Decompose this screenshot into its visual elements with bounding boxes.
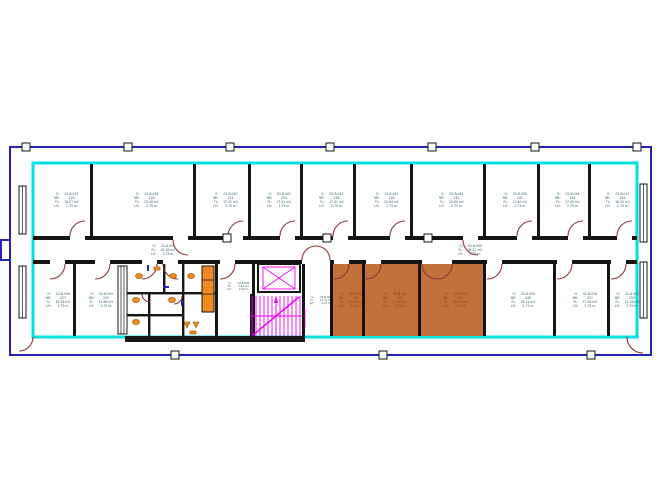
stamp-value: 2.75 m	[66, 204, 77, 208]
room-zone-02.B.059[interactable]: G:02.B.059NR:229FL:15.86 m2LH:2.75 m	[73, 264, 119, 336]
wall-segment	[502, 260, 557, 264]
wall-segment	[532, 236, 568, 240]
stamp-tag: LH:	[151, 252, 156, 256]
stamp-value: 2.75 m	[351, 304, 362, 308]
urinal-fixture	[184, 322, 190, 328]
partition-wall	[410, 164, 413, 236]
room-area[interactable]	[353, 164, 410, 236]
room-area[interactable]	[300, 164, 353, 236]
stamp-tag: LH:	[374, 204, 379, 208]
stamp-value: 2.75 m	[395, 304, 406, 308]
toilet-block-fixtures	[133, 265, 200, 334]
stamp-value: 2.75 m	[163, 252, 174, 256]
toilet-fixture	[169, 297, 176, 302]
room-zone-02.B.051[interactable]: G:02.B.051NR:243FL:11.09 m2LH:2.75 m	[330, 264, 363, 336]
stamp-tag: LH:	[605, 204, 610, 208]
wall-segment	[157, 260, 163, 264]
entry-door-arc	[19, 337, 33, 351]
partition-wall	[353, 164, 356, 236]
toilet-fixture	[133, 319, 140, 324]
sink-fixture	[154, 267, 160, 270]
room-zone-02.B.044[interactable]: G:02.B.044NR:240FL:20.64 m2LH:2.75 m	[410, 164, 483, 236]
room-zone-02.B.038[interactable]: G:02.B.038NR:228FL:23.46 m2LH:2.75 m	[90, 164, 193, 236]
stamp-tag: LH:	[439, 204, 444, 208]
wall-segment	[452, 260, 487, 264]
service-block-south-wall	[125, 336, 305, 342]
partition-wall	[588, 164, 591, 236]
column-marker	[323, 234, 331, 242]
room-area[interactable]	[553, 264, 607, 336]
floor-plan-canvas: G:02.B.037NR:226FL:14.27 m2LH:2.75 mG:02…	[0, 0, 660, 500]
wall-segment	[632, 236, 637, 240]
toilet-fixture	[136, 273, 143, 278]
window-marker	[640, 262, 647, 318]
stamp-value: 2.75 m	[585, 304, 596, 308]
stamp-value: 2.75 m	[515, 204, 526, 208]
toilet-fixture	[133, 297, 140, 302]
stamp-tag: LH:	[134, 204, 139, 208]
wall-segment	[188, 236, 228, 240]
stamp-tag: LH:	[511, 304, 516, 308]
room-area[interactable]	[33, 164, 90, 236]
stamp-value: 2.75 m	[523, 304, 534, 308]
room-area[interactable]	[193, 164, 248, 236]
partition-wall	[73, 264, 76, 336]
grid-tick	[124, 143, 132, 151]
stamp-tag: LH:	[267, 204, 272, 208]
double-door-arc	[316, 246, 330, 260]
stamp-value: 2.75 m	[455, 304, 466, 308]
room-zone-02.B.052[interactable]: G:02.B.052NR:245FL:17.80 m2LH:2.75 m	[362, 264, 418, 336]
door-leaf-marker	[181, 300, 183, 306]
partition-wall	[215, 264, 218, 336]
grid-tick	[531, 143, 539, 151]
stamp-tag: LH:	[54, 204, 59, 208]
room-area[interactable]	[537, 164, 588, 236]
stamp-value: 2.75 m	[386, 204, 397, 208]
stamp-value: 2.75 m	[101, 304, 112, 308]
room-zone-02.B.040[interactable]: G:02.B.040NR:232FL:17.52 m2LH:2.75 m	[193, 164, 248, 236]
grid-tick	[633, 143, 641, 151]
room-area[interactable]	[330, 238, 600, 262]
stamp-value: 2.75 m	[58, 304, 69, 308]
stamp-tag: LH:	[46, 304, 51, 308]
stamp-tag: LH:	[383, 304, 388, 308]
double-door-arc	[302, 246, 316, 260]
stamp-tag: LH:	[310, 301, 314, 305]
stamp-tag: LH:	[555, 204, 560, 208]
column-marker	[223, 234, 231, 242]
partition-wall	[330, 264, 333, 336]
wall-segment	[405, 236, 463, 240]
partition-wall	[537, 164, 540, 236]
stamp-tag: LH:	[615, 304, 620, 308]
partition-wall	[553, 264, 556, 336]
room-zone-02.B.042[interactable]: G:02.B.042NR:236FL:17.41 m2LH:2.75 m	[300, 164, 353, 236]
cupboard-box	[118, 266, 127, 334]
riser-shaft	[202, 266, 214, 312]
room-zone-02.B.055[interactable]: G:02.B.055NR:249FL:26.12 m2LH:2.75 m	[483, 264, 553, 336]
room-zone-02.B.058[interactable]: G:02.B.058NR:227FL:16.36 m2LH:2.75 m	[33, 264, 73, 336]
room-zone-02.B.057[interactable]: G:02.B.057NR:253FL:12.26 m2LH:2.70 m	[607, 264, 639, 336]
room-area[interactable]	[90, 164, 193, 236]
stamp-value: 2.64 m	[239, 287, 249, 291]
wall-segment	[572, 260, 611, 264]
stamp-tag: LH:	[89, 304, 94, 308]
toilet-wall	[148, 292, 150, 336]
wall-segment	[85, 236, 173, 240]
stamp-tag: LH:	[227, 287, 231, 291]
room-zone-02.B.050[interactable]: G:02.B.050FL:38.51 m2LH:2.75 m	[330, 238, 600, 262]
toilet-wall	[119, 292, 215, 294]
door-leaf-marker	[163, 286, 169, 288]
room-zone-02.B.053[interactable]: G:02.B.053NR:247FL:23.52 m2LH:2.75 m	[418, 264, 483, 336]
stair-direction-arrow	[274, 296, 278, 303]
room-zone-02.B.041[interactable]: G:02.B.041NR:234FL:17.41 m2LH:2.75 m	[248, 164, 300, 236]
window-marker	[19, 266, 26, 318]
stamp-tag: LH:	[458, 252, 463, 256]
partition-wall	[193, 164, 196, 236]
floor-plan-page: G:02.B.037NR:226FL:14.27 m2LH:2.75 mG:02…	[0, 0, 660, 500]
wall-segment	[33, 260, 50, 264]
wall-segment	[626, 260, 637, 264]
stamp-value: 2.75 m	[225, 204, 236, 208]
wall-segment	[330, 260, 334, 264]
stamp-value: 2.75 m	[331, 204, 342, 208]
room-zone-02.B.043[interactable]: G:02.B.043NR:238FL:24.94 m2LH:2.75 m	[353, 164, 410, 236]
partition-wall	[483, 164, 486, 236]
door-leaf-marker	[147, 265, 149, 271]
partition-wall	[90, 164, 93, 236]
stamp-tag: LH:	[339, 304, 344, 308]
wall-segment	[478, 236, 517, 240]
stamp-tag: LH:	[503, 204, 508, 208]
wall-segment	[65, 260, 95, 264]
grid-tick	[326, 143, 334, 151]
door-arc	[142, 264, 157, 279]
stamp-tag: LH:	[573, 304, 578, 308]
toilet-fixture	[188, 273, 195, 278]
window-marker	[19, 186, 26, 234]
stair-dimension-note: 18x0.18/0.28	[303, 308, 307, 328]
wall-segment	[349, 260, 366, 264]
room-zone-02.B.045[interactable]: G:02.B.045NR:242FL:17.40 m2LH:2.75 m	[483, 164, 537, 236]
room-zone-02.B.037[interactable]: G:02.B.037NR:226FL:14.27 m2LH:2.75 m	[33, 164, 90, 236]
room-zone-02.B.056[interactable]: G:02.B.056NR:251FL:17.46 m2LH:2.75 m	[553, 264, 607, 336]
stamp-value: 2.75 m	[567, 204, 578, 208]
column-marker	[424, 234, 432, 242]
wall-segment	[348, 236, 390, 240]
partition-wall	[483, 264, 486, 336]
room-area[interactable]	[33, 238, 283, 262]
wall-segment	[178, 260, 220, 264]
room-area[interactable]	[248, 164, 300, 236]
wall-segment	[243, 236, 280, 240]
highlighted-room-area[interactable]	[362, 264, 418, 336]
partition-wall	[248, 164, 251, 236]
toilet-fixture	[170, 273, 177, 278]
toilet-wall	[119, 314, 182, 316]
stamp-tag: LH:	[319, 204, 324, 208]
room-zone-02.B.004[interactable]: G:02.B.004FL:42.38 m2LH:2.75 m	[33, 238, 283, 262]
room-zone-02.B.046[interactable]: G:02.B.046NR:244FL:17.40 m2LH:2.75 m	[537, 164, 588, 236]
sink-fixture	[190, 331, 196, 334]
wall-segment	[381, 260, 422, 264]
partition-wall	[362, 264, 365, 336]
partition-wall	[607, 264, 610, 336]
stamp-value: 2.70 m	[627, 304, 638, 308]
room-area[interactable]	[483, 164, 537, 236]
stamp-value: 2.70 m	[321, 301, 331, 305]
grid-tick	[22, 143, 30, 151]
grid-tick	[587, 351, 595, 359]
wall-segment	[583, 236, 617, 240]
facade-notch	[1, 240, 10, 260]
highlighted-room-area[interactable]	[418, 264, 483, 336]
stamp-value: 2.75 m	[451, 204, 462, 208]
grid-tick	[226, 143, 234, 151]
room-zone-02.B.047[interactable]: G:02.B.047NR:246FL:18.50 m2LH:2.70 m	[588, 164, 637, 236]
riser-shaft-box	[202, 266, 214, 312]
room-area[interactable]	[410, 164, 483, 236]
partition-wall	[418, 264, 421, 336]
built-in-cupboard	[118, 266, 127, 334]
partition-wall	[300, 164, 303, 236]
stamp-tag: LH:	[213, 204, 218, 208]
wall-segment	[33, 236, 70, 240]
stamp-value: 2.70 m	[617, 204, 628, 208]
entry-door-arc	[627, 337, 643, 353]
room-area[interactable]	[483, 264, 553, 336]
stamp-value: 2.75 m	[279, 204, 290, 208]
wall-segment	[110, 260, 142, 264]
stamp-tag: LH:	[443, 304, 448, 308]
grid-tick	[379, 351, 387, 359]
stamp-value: 2.75 m	[146, 204, 157, 208]
grid-tick	[171, 351, 179, 359]
urinal-fixture	[193, 322, 199, 328]
grid-tick	[428, 143, 436, 151]
window-marker	[640, 184, 647, 242]
